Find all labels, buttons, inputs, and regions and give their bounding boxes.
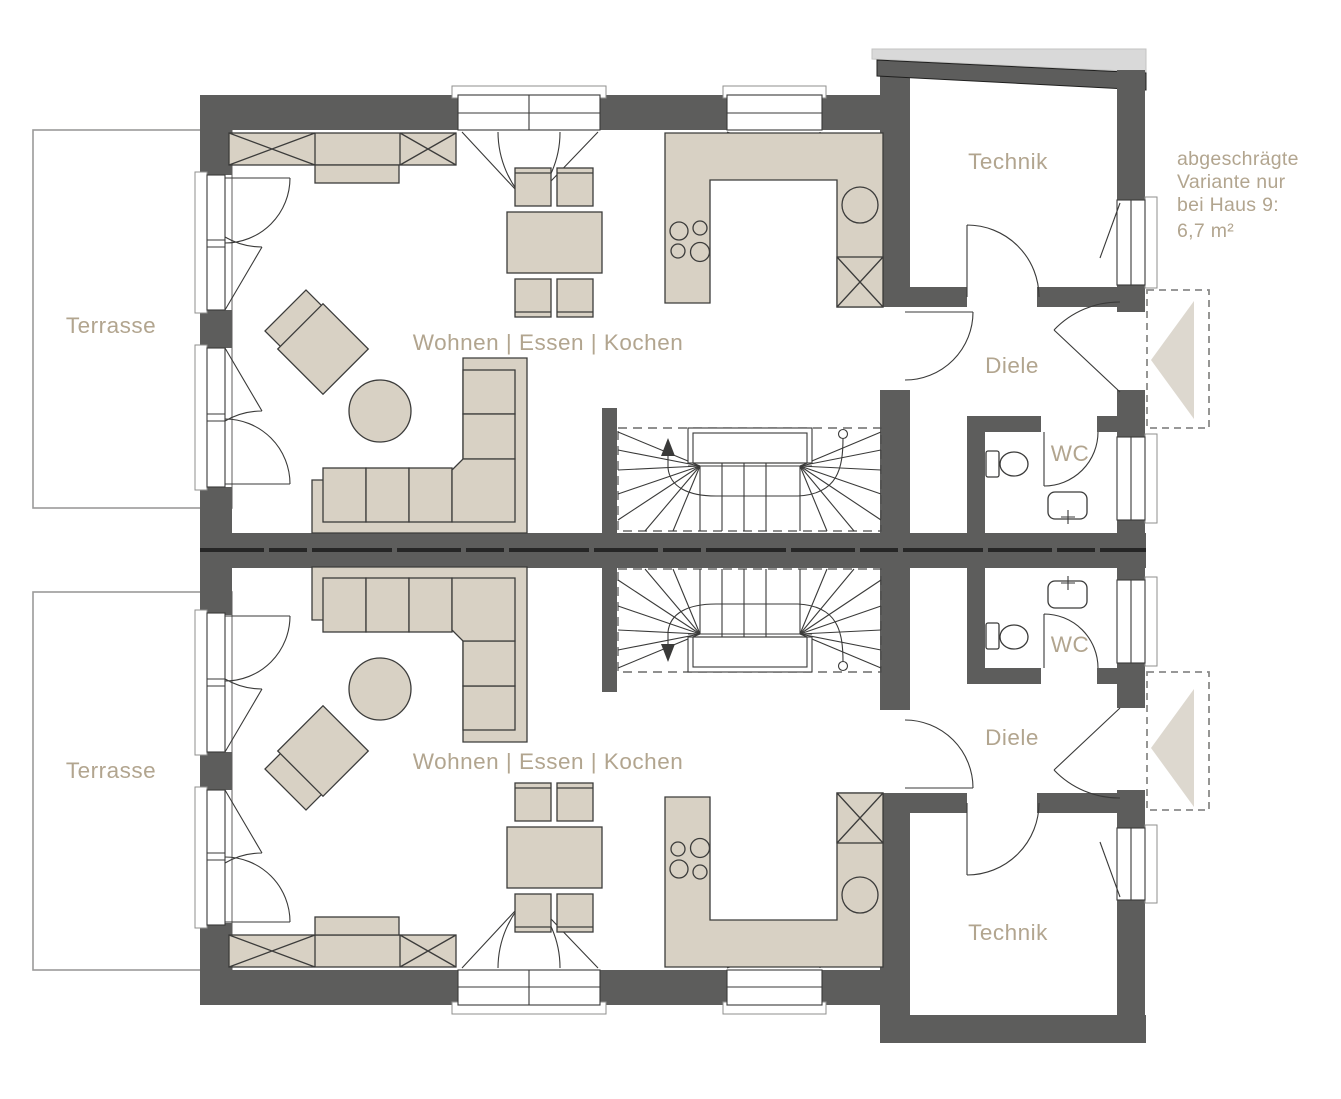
sofa-upper [312, 358, 527, 533]
kitchen-upper [665, 133, 883, 307]
coffee-table-upper [349, 380, 411, 442]
sofa-lower [312, 567, 527, 742]
armchair-upper [265, 290, 368, 394]
entrance-porch-lower [1147, 672, 1209, 810]
sideboard-upper [229, 133, 456, 183]
coffee-table-lower [349, 658, 411, 720]
floorplan-svg: Terrasse Wohnen | Essen | Kochen Technik… [0, 0, 1341, 1099]
technik-label-lower: Technik [968, 920, 1048, 945]
party-wall [200, 533, 1146, 568]
svg-text:abgeschrägte: abgeschrägte [1177, 148, 1299, 170]
dining-set-upper [507, 168, 602, 317]
terrace-label-lower: Terrasse [66, 758, 156, 783]
sideboard-lower [229, 917, 456, 967]
hall-label-upper: Diele [985, 353, 1039, 378]
svg-text:Variante nur: Variante nur [1177, 171, 1286, 193]
entrance-porch-upper [1147, 290, 1209, 428]
svg-text:6,7 m²: 6,7 m² [1177, 220, 1234, 242]
floorplan-page: Terrasse Wohnen | Essen | Kochen Technik… [0, 0, 1341, 1099]
staircase-lower [618, 569, 881, 672]
wc-label-lower: WC [1051, 632, 1090, 657]
annotation-note: abgeschrägte Variante nur bei Haus 9: 6,… [1177, 148, 1299, 242]
living-label-lower: Wohnen | Essen | Kochen [413, 749, 683, 774]
kitchen-lower [665, 793, 883, 967]
wc-label-upper: WC [1051, 441, 1090, 466]
staircase-upper [618, 428, 881, 531]
hall-label-lower: Diele [985, 725, 1039, 750]
terrace-label-upper: Terrasse [66, 313, 156, 338]
living-label-upper: Wohnen | Essen | Kochen [413, 330, 683, 355]
armchair-lower [265, 706, 368, 810]
technik-label-upper: Technik [968, 149, 1048, 174]
svg-text:bei Haus 9:: bei Haus 9: [1177, 194, 1279, 216]
dining-set-lower [507, 783, 602, 932]
